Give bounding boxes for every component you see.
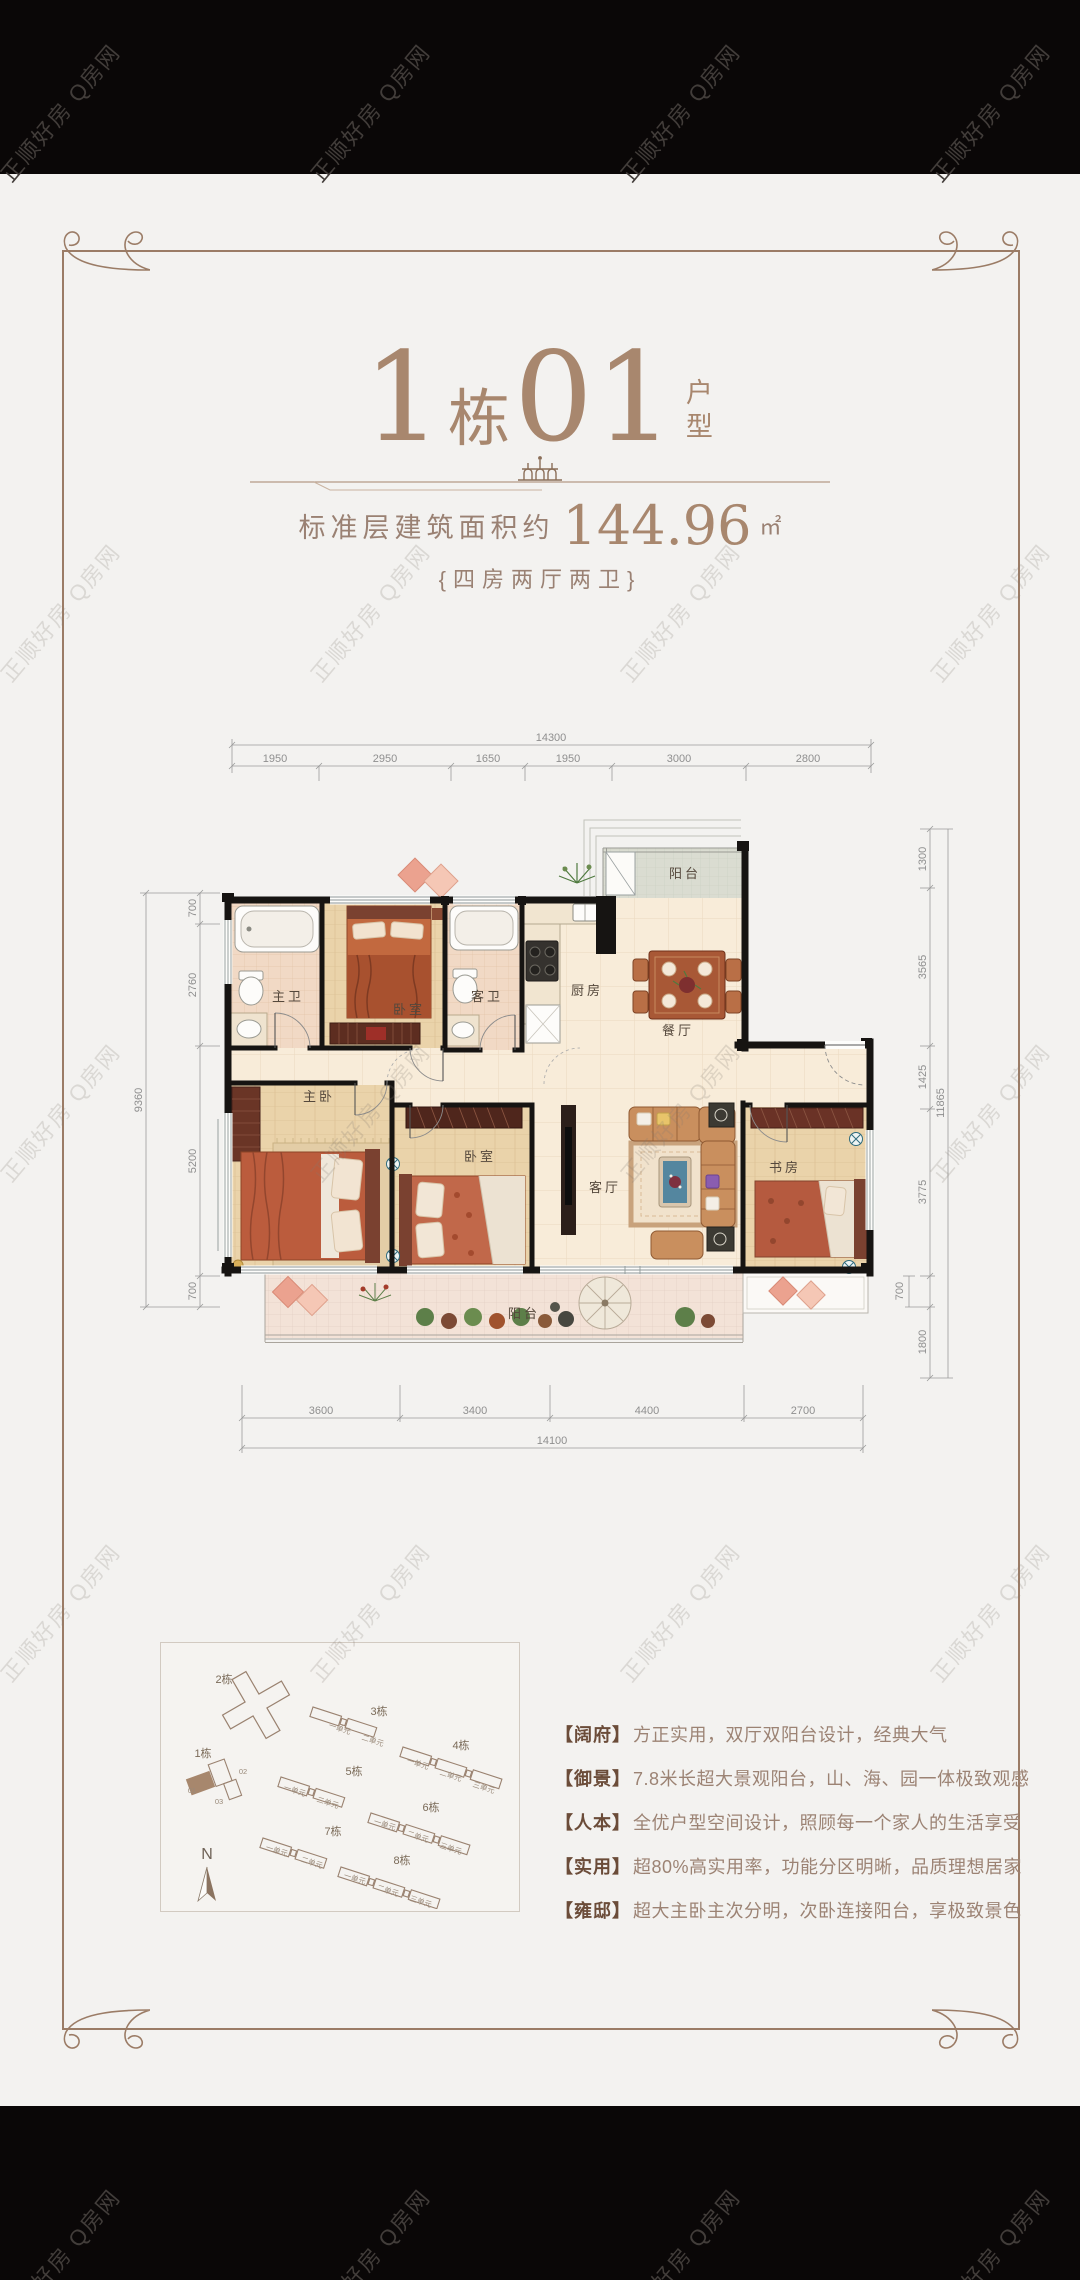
top-letterbox-bar	[0, 0, 1080, 174]
title-building-char: 栋	[448, 388, 510, 450]
svg-text:700: 700	[187, 1282, 199, 1300]
feature-item: 【人本】全优户型空间设计，照顾每一个家人的生活享受	[555, 1800, 1060, 1844]
compass: N	[198, 1846, 216, 1901]
svg-text:4栋: 4栋	[452, 1738, 469, 1752]
svg-text:700: 700	[187, 899, 199, 917]
feature-item: 【阔府】方正实用，双厅双阳台设计，经典大气	[555, 1712, 1060, 1756]
svg-text:3600: 3600	[309, 1405, 333, 1417]
floorplan-poster: 1 栋 01 户型 标准层建筑面积约144.96㎡ {四房两厅两卫}	[0, 0, 1080, 2280]
feature-item: 【实用】超80%高实用率，功能分区明晰，品质理想居家	[555, 1844, 1060, 1888]
feature-tag: 【御景】	[555, 1765, 631, 1791]
siteplan-building-5: 5栋 一单元 二单元	[278, 1764, 363, 1811]
siteplan-box: 2栋 1栋 02 01 03 3栋 一单元 二单元 4栋 一单元	[160, 1642, 520, 1912]
svg-text:二单元: 二单元	[361, 1732, 386, 1749]
svg-text:二单元: 二单元	[439, 1767, 464, 1784]
feature-item: 【御景】7.8米长超大景观阳台，山、海、园一体极致观感	[555, 1756, 1060, 1800]
feature-list: 【阔府】方正实用，双厅双阳台设计，经典大气 【御景】7.8米长超大景观阳台，山、…	[555, 1712, 1060, 1932]
svg-text:一单元: 一单元	[265, 1842, 290, 1859]
feature-tag: 【人本】	[555, 1809, 631, 1835]
svg-text:1800: 1800	[917, 1330, 929, 1354]
siteplan-building-1: 1栋 02 01 03	[184, 1746, 247, 1811]
siteplan-svg: 2栋 1栋 02 01 03 3栋 一单元 二单元 4栋 一单元	[161, 1643, 517, 1909]
svg-text:02: 02	[239, 1767, 247, 1776]
svg-text:1650: 1650	[476, 753, 500, 765]
feature-tag: 【实用】	[555, 1853, 631, 1879]
feature-text: 超80%高实用率，功能分区明晰，品质理想居家	[633, 1853, 1022, 1879]
svg-text:2栋: 2栋	[215, 1672, 232, 1686]
svg-text:3000: 3000	[667, 753, 691, 765]
floorplan-svg: 14300 1950 2950 1650 1950 3000 2800 3600…	[125, 715, 955, 1475]
balcony-top	[584, 820, 743, 898]
svg-text:1950: 1950	[263, 753, 287, 765]
svg-text:二单元: 二单元	[376, 1882, 401, 1899]
svg-text:一单元: 一单元	[406, 1755, 431, 1772]
svg-text:9360: 9360	[133, 1088, 145, 1112]
room-label-study: 书房	[769, 1160, 801, 1175]
svg-text:700: 700	[894, 1282, 906, 1300]
plan-title: 1 栋 01 户型	[0, 336, 1080, 460]
area-line: 标准层建筑面积约144.96㎡	[0, 494, 1080, 557]
room-label-dining: 餐厅	[662, 1023, 694, 1038]
siteplan-building-3: 3栋 一单元 二单元	[310, 1704, 388, 1749]
svg-text:4400: 4400	[635, 1405, 659, 1417]
room-label-bedroom2: 卧室	[393, 1002, 425, 1017]
feature-text: 方正实用，双厅双阳台设计，经典大气	[633, 1721, 948, 1747]
title-type-label: 户型	[686, 377, 717, 445]
svg-text:5栋: 5栋	[345, 1764, 362, 1778]
dining-furniture	[633, 951, 741, 1019]
corner-flourish-icon	[932, 2006, 1028, 2054]
svg-text:03: 03	[215, 1797, 223, 1806]
area-value: 144.96	[563, 494, 752, 557]
title-divider	[250, 452, 830, 496]
feature-tag: 【雍邸】	[555, 1897, 631, 1923]
siteplan-building-7: 7栋 一单元 二单元	[260, 1824, 342, 1871]
siteplan-building-6: 6栋 一单元 二单元 三单元	[368, 1800, 470, 1857]
corner-flourish-icon	[54, 2006, 150, 2054]
svg-text:一单元: 一单元	[343, 1870, 368, 1887]
room-label-master-bedroom: 主卧	[303, 1089, 335, 1104]
title-building-number: 1	[363, 336, 444, 460]
svg-text:二单元: 二单元	[406, 1828, 431, 1845]
svg-text:6栋: 6栋	[422, 1800, 439, 1814]
svg-text:1栋: 1栋	[194, 1746, 211, 1760]
corner-flourish-icon	[932, 226, 1028, 274]
svg-text:3400: 3400	[463, 1405, 487, 1417]
compass-arrow-icon	[207, 1867, 216, 1901]
svg-text:2800: 2800	[796, 753, 820, 765]
room-label-balcony-bottom: 阳台	[508, 1306, 540, 1321]
corner-flourish-icon	[54, 226, 150, 274]
svg-text:三单元: 三单元	[472, 1779, 497, 1796]
feature-item: 【雍邸】超大主卧主次分明，次卧连接阳台，享极致景色	[555, 1888, 1060, 1932]
svg-text:8栋: 8栋	[393, 1853, 410, 1867]
feature-text: 全优户型空间设计，照顾每一个家人的生活享受	[633, 1809, 1022, 1835]
bottom-letterbox-bar	[0, 2106, 1080, 2280]
svg-text:二单元: 二单元	[316, 1794, 341, 1811]
svg-text:14100: 14100	[537, 1435, 568, 1447]
title-unit-number: 01	[514, 336, 676, 460]
svg-text:1950: 1950	[556, 753, 580, 765]
svg-text:5200: 5200	[187, 1149, 199, 1173]
room-label-bedroom3: 卧室	[464, 1149, 496, 1164]
svg-text:2950: 2950	[373, 753, 397, 765]
svg-text:11865: 11865	[935, 1088, 947, 1118]
svg-text:1300: 1300	[917, 847, 929, 871]
dimensions-bottom: 3600 3400 4400 2700 14100	[239, 1385, 866, 1453]
feature-text: 超大主卧主次分明，次卧连接阳台，享极致景色	[633, 1897, 1022, 1923]
dimensions-top: 14300 1950 2950 1650 1950 3000 2800	[229, 732, 874, 781]
floorplan: 14300 1950 2950 1650 1950 3000 2800 3600…	[125, 715, 955, 1480]
svg-text:1425: 1425	[917, 1065, 929, 1089]
palace-ornament-icon	[518, 457, 562, 480]
balcony-bottom	[265, 1273, 743, 1343]
svg-text:一单元: 一单元	[373, 1816, 398, 1833]
area-prefix: 标准层建筑面积约	[299, 513, 555, 543]
svg-text:01: 01	[188, 1786, 196, 1795]
dimensions-left: 700 2760 5200 700 9360	[133, 890, 220, 1310]
area-unit: ㎡	[759, 515, 781, 540]
feature-text: 7.8米长超大景观阳台，山、海、园一体极致观感	[633, 1765, 1030, 1791]
siteplan-building-8: 8栋 一单元 二单元 三单元	[338, 1853, 440, 1909]
baywindow-decor	[398, 858, 595, 898]
room-label-living: 客厅	[589, 1180, 621, 1195]
room-label-balcony-top: 阳台	[669, 866, 701, 881]
feature-tag: 【阔府】	[555, 1721, 631, 1747]
layout-spec: {四房两厅两卫}	[0, 562, 1080, 594]
svg-text:7栋: 7栋	[324, 1824, 341, 1838]
room-label-kitchen: 厨房	[571, 983, 603, 998]
room-label-guest-bath: 客卫	[471, 989, 503, 1004]
svg-text:2700: 2700	[791, 1405, 815, 1417]
dimensions-right: 1300 3565 1425 3775 700 1800 11865	[894, 826, 953, 1381]
siteplan-building-2: 2栋	[210, 1659, 303, 1752]
siteplan-building-4: 4栋 一单元 二单元 三单元	[400, 1738, 502, 1796]
svg-text:3775: 3775	[917, 1180, 929, 1204]
svg-text:14300: 14300	[536, 732, 567, 744]
compass-arrow-icon	[198, 1867, 207, 1901]
room-label-master-bath: 主卫	[272, 989, 304, 1004]
study-baywindow	[743, 1273, 868, 1313]
compass-n-label: N	[201, 1846, 213, 1863]
svg-text:3565: 3565	[917, 955, 929, 979]
svg-text:3栋: 3栋	[370, 1704, 387, 1718]
svg-text:2760: 2760	[187, 973, 199, 997]
